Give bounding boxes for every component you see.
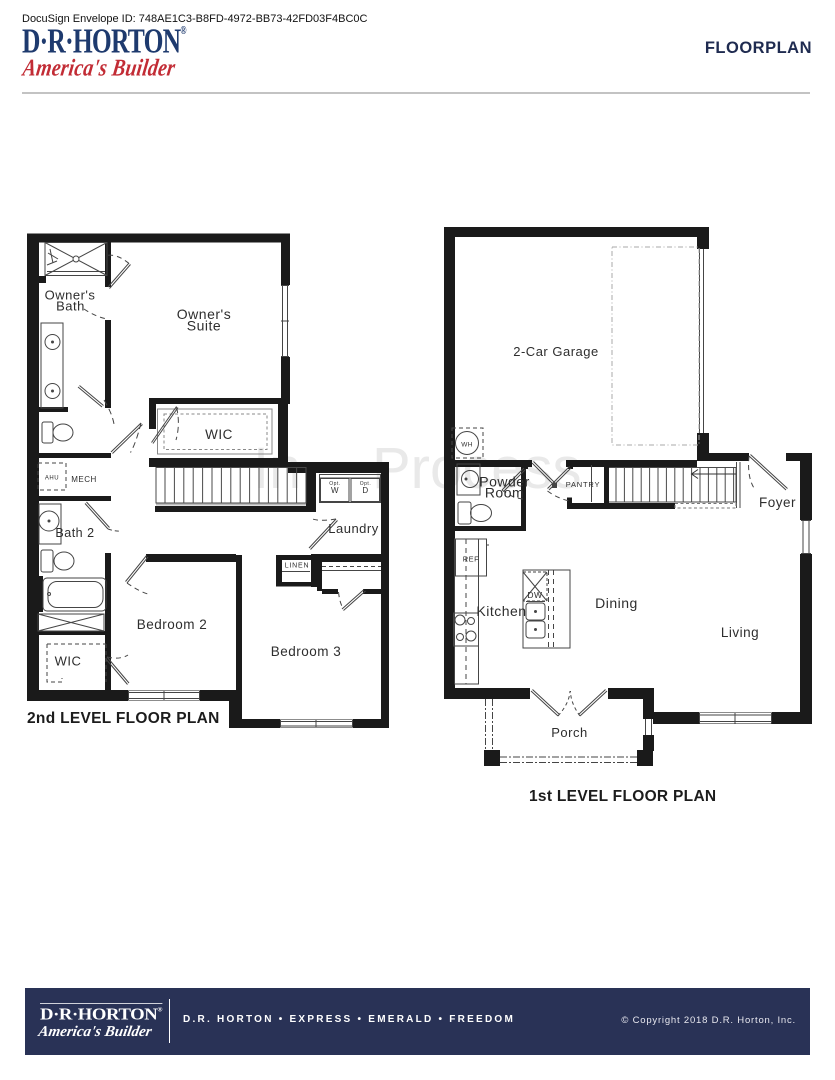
svg-text:D: D (362, 486, 368, 495)
svg-text:Bedroom 2: Bedroom 2 (137, 617, 208, 632)
svg-text:PANTRY: PANTRY (566, 480, 601, 489)
svg-text:Process: Process (372, 436, 582, 501)
svg-text:Dining: Dining (595, 595, 638, 611)
svg-text:Porch: Porch (551, 725, 587, 740)
svg-text:Laundry: Laundry (328, 521, 378, 536)
svg-text:2nd LEVEL FLOOR PLAN: 2nd LEVEL FLOOR PLAN (27, 710, 220, 727)
svg-text:2-Car Garage: 2-Car Garage (513, 344, 598, 359)
svg-text:LINEN: LINEN (285, 563, 310, 570)
svg-text:Bath 2: Bath 2 (55, 526, 94, 540)
svg-text:Bath: Bath (56, 299, 85, 314)
svg-text:DW: DW (527, 590, 542, 600)
svg-text:Bedroom 3: Bedroom 3 (271, 644, 342, 659)
svg-text:WIC: WIC (205, 427, 233, 442)
svg-text:REF: REF (463, 555, 480, 564)
svg-text:Room: Room (485, 485, 524, 501)
svg-text:Suite: Suite (187, 318, 221, 334)
svg-text:AHU: AHU (45, 476, 59, 482)
svg-text:WIC: WIC (55, 654, 82, 669)
svg-text:Kitchen: Kitchen (476, 603, 526, 619)
svg-text:Foyer: Foyer (759, 495, 796, 510)
svg-text:WH: WH (461, 442, 472, 449)
svg-text:Living: Living (721, 625, 759, 640)
svg-text:MECH: MECH (71, 475, 97, 484)
svg-text:W: W (331, 486, 339, 495)
svg-text:1st LEVEL FLOOR PLAN: 1st LEVEL FLOOR PLAN (529, 788, 716, 805)
